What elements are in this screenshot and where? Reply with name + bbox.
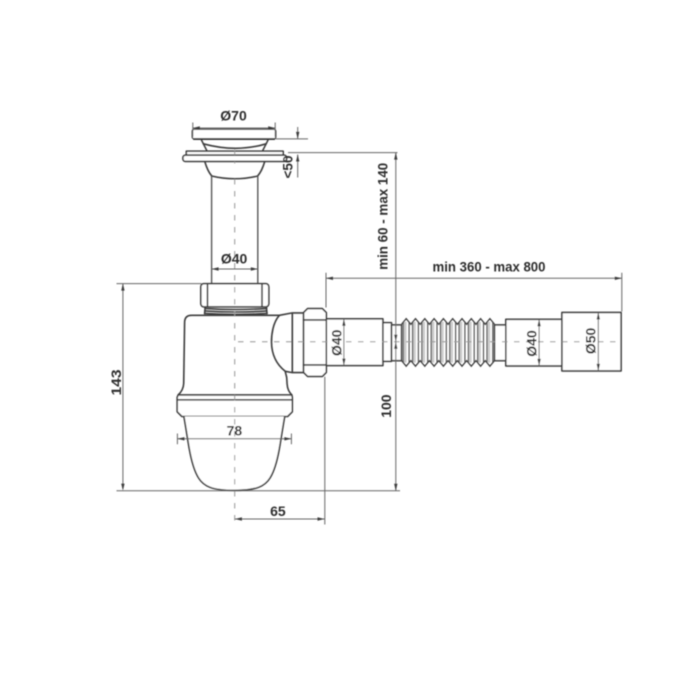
svg-text:min 60 - max 140: min 60 - max 140 (374, 163, 390, 270)
svg-text:Ø40: Ø40 (328, 329, 344, 356)
svg-text:min 360 - max 800: min 360 - max 800 (433, 259, 546, 275)
svg-text:Ø70: Ø70 (220, 108, 247, 124)
svg-text:78: 78 (227, 422, 243, 438)
svg-text:Ø40: Ø40 (523, 330, 539, 357)
svg-text:Ø50: Ø50 (583, 327, 599, 354)
svg-text:Ø40: Ø40 (221, 250, 248, 266)
svg-text:143: 143 (108, 369, 124, 395)
svg-text:100: 100 (378, 394, 394, 418)
svg-text:65: 65 (270, 503, 286, 519)
svg-text:<50: <50 (280, 156, 295, 179)
